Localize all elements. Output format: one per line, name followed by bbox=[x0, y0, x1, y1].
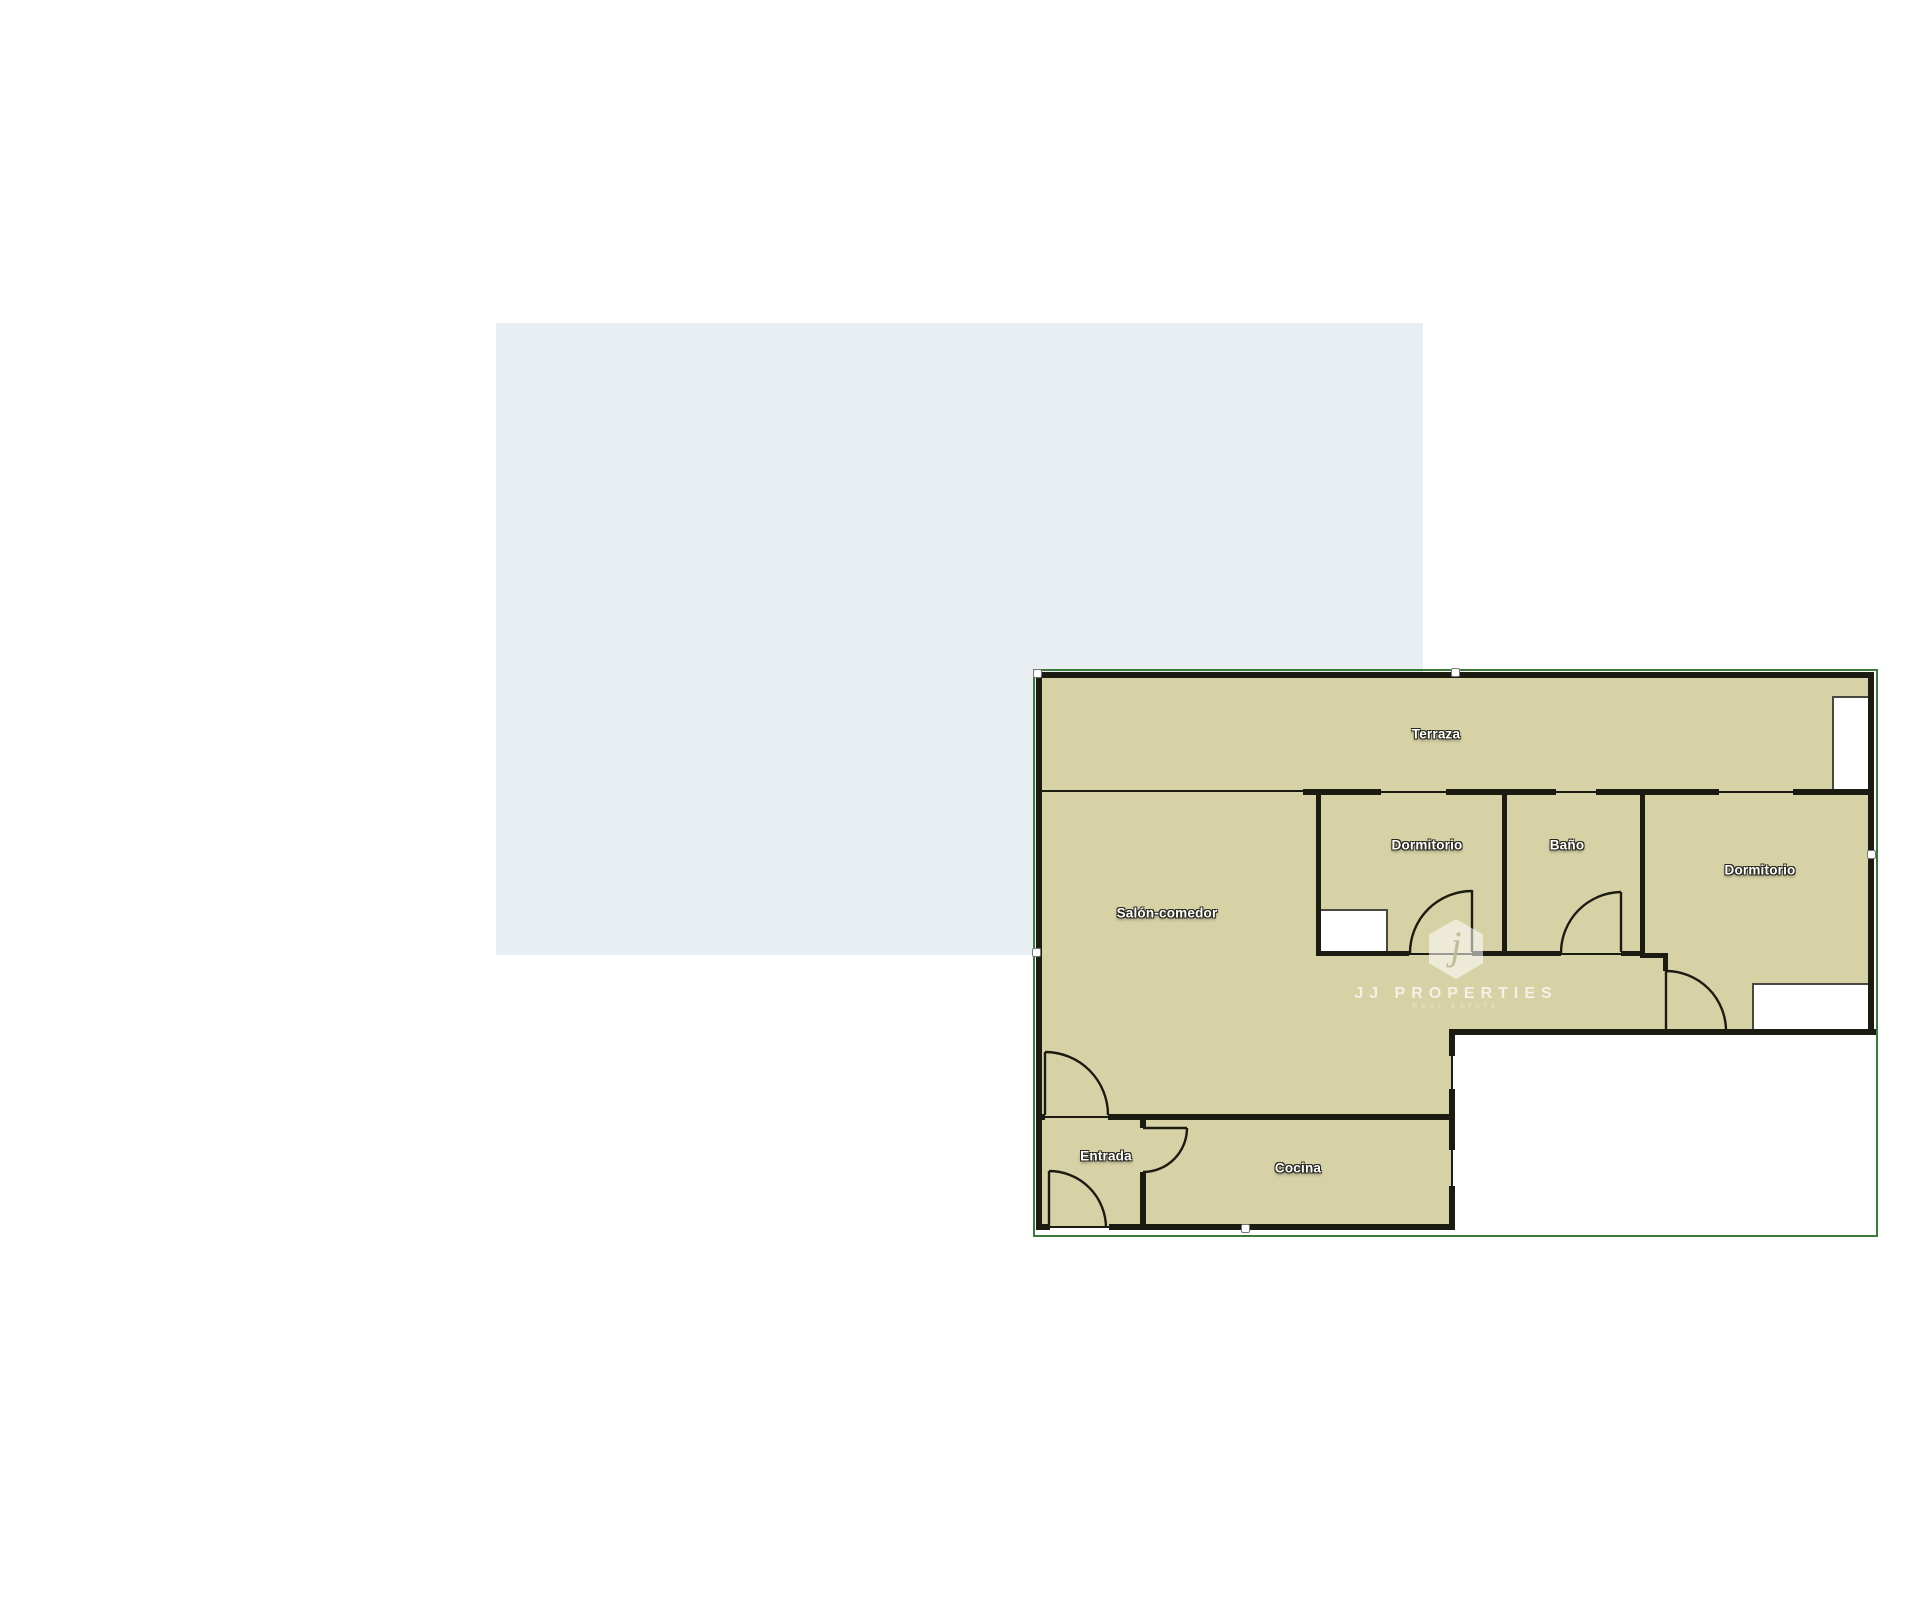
wall-entrada-cocina-a bbox=[1140, 1114, 1146, 1128]
selection-handle-left-mid[interactable] bbox=[1032, 948, 1041, 957]
window-notch-1 bbox=[1451, 1056, 1453, 1089]
room-label-terraza: Terraza bbox=[1412, 727, 1460, 742]
wall-salon-dormitorio bbox=[1316, 791, 1321, 956]
wall-terrace-c bbox=[1596, 789, 1719, 795]
watermark-brand-text: JJ PROPERTIES bbox=[1354, 985, 1557, 1003]
wall-dorm2-step-v bbox=[1663, 953, 1668, 971]
room-label-cocina: Cocina bbox=[1275, 1161, 1321, 1176]
window-terrace-1 bbox=[1381, 791, 1446, 793]
room-label-dormitorio-1: Dormitorio bbox=[1392, 838, 1463, 853]
page-background: Terraza Dormitorio Baño Dormitorio Salón… bbox=[0, 0, 1920, 1280]
entrance-door-threshold bbox=[1049, 1226, 1109, 1228]
closet-rect-dormitorio-2 bbox=[1752, 983, 1870, 1032]
window-notch-2 bbox=[1451, 1150, 1453, 1186]
room-label-bano: Baño bbox=[1550, 838, 1585, 853]
closet-rect-dormitorio-1 bbox=[1318, 909, 1388, 954]
wall-dorm-bottom-b bbox=[1472, 951, 1561, 956]
wall-salon-wing-a bbox=[1036, 1114, 1045, 1120]
room-label-dormitorio-2: Dormitorio bbox=[1725, 863, 1796, 878]
wall-wing-bottom bbox=[1449, 1029, 1876, 1035]
room-label-entrada: Entrada bbox=[1080, 1149, 1132, 1164]
selection-handle-top-left[interactable] bbox=[1033, 669, 1042, 678]
terrace-structure-rect bbox=[1832, 696, 1872, 792]
wall-bottom-left bbox=[1036, 1224, 1050, 1230]
window-terrace-3 bbox=[1719, 791, 1793, 793]
wall-entrada-cocina-b bbox=[1140, 1172, 1146, 1230]
floorplan-canvas: Terraza Dormitorio Baño Dormitorio Salón… bbox=[496, 323, 1423, 955]
wall-salon-wing-b bbox=[1108, 1114, 1455, 1120]
wall-dorm-bottom-a bbox=[1316, 951, 1409, 956]
room-label-salon: Salón-comedor bbox=[1117, 906, 1218, 921]
selection-handle-bottom-mid[interactable] bbox=[1241, 1224, 1250, 1233]
wall-dormitorio-bano bbox=[1502, 791, 1507, 956]
wall-bano-dormitorio2 bbox=[1640, 791, 1645, 956]
selection-handle-right-mid[interactable] bbox=[1867, 850, 1876, 859]
terrace-open-boundary bbox=[1042, 790, 1303, 792]
door-threshold-salon bbox=[1045, 1116, 1108, 1118]
wall-terrace-a bbox=[1303, 789, 1381, 795]
wall-bottom bbox=[1109, 1224, 1455, 1230]
watermark-logo-letter: j bbox=[1450, 926, 1461, 966]
wall-terrace-d bbox=[1793, 789, 1874, 795]
wall-notch-vertical-c bbox=[1449, 1186, 1455, 1230]
watermark-tagline-text: REAL ESTATE bbox=[1413, 1003, 1500, 1010]
window-terrace-2 bbox=[1556, 791, 1596, 793]
selection-handle-top-mid[interactable] bbox=[1451, 668, 1460, 677]
floor-area-kitchen-wing bbox=[1039, 1029, 1452, 1228]
door-threshold-bano bbox=[1561, 953, 1621, 955]
wall-terrace-b bbox=[1446, 789, 1556, 795]
